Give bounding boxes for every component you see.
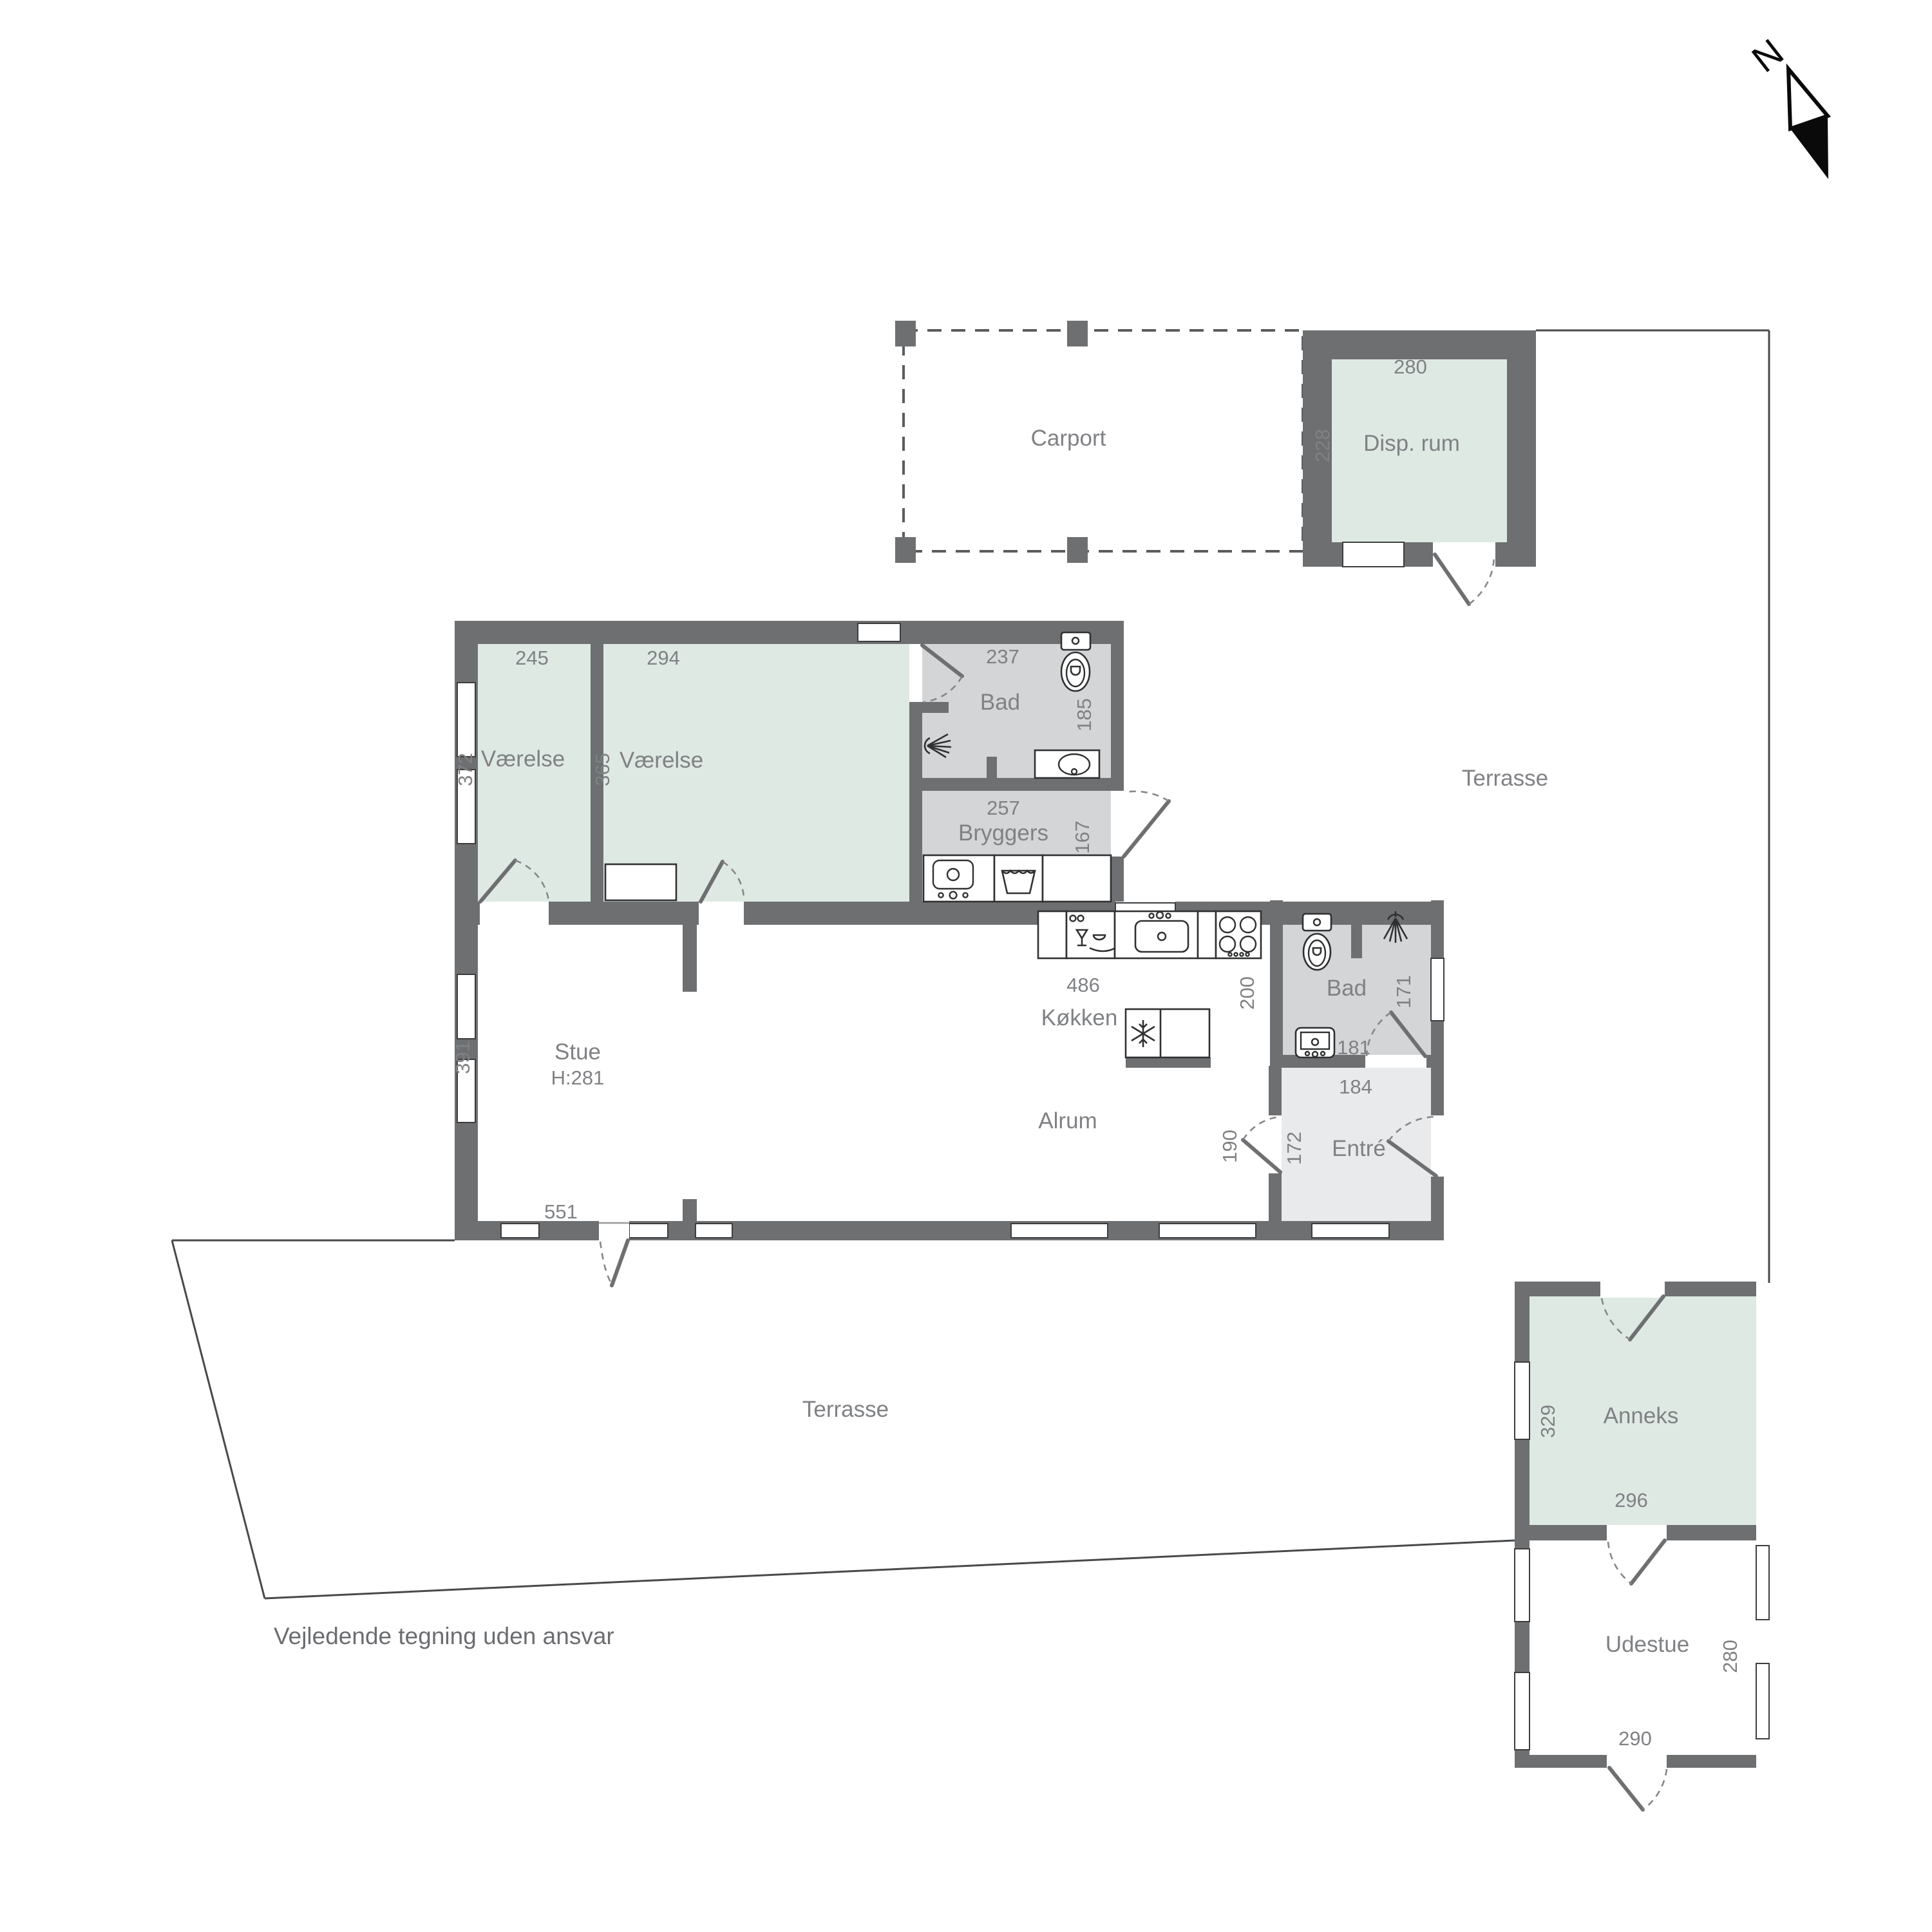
disclaimer-text: Vejledende tegning uden ansvar — [274, 1623, 614, 1649]
bathroom-sink — [1296, 1028, 1334, 1057]
stue-width: 551 — [544, 1200, 578, 1223]
stue-ceiling: H:281 — [551, 1066, 605, 1089]
room-anneks: 329 Anneks 296 — [1515, 1280, 1756, 1539]
vaerelse-1-width: 245 — [515, 647, 549, 669]
udestue-height: 280 — [1719, 1640, 1741, 1673]
alrum-label: Alrum — [1038, 1108, 1097, 1133]
carport-area: Carport — [895, 321, 1303, 563]
udestue-window — [1515, 1549, 1529, 1622]
window — [1159, 1224, 1256, 1238]
bryggers-label: Bryggers — [958, 820, 1048, 846]
anneks-window — [1515, 1362, 1529, 1439]
window — [457, 974, 475, 1039]
carport-post — [1067, 321, 1088, 346]
bad-1-label: Bad — [980, 690, 1020, 715]
carport-label: Carport — [1031, 426, 1106, 451]
udestue-bottom-door-opening — [1607, 1755, 1667, 1768]
vaerelse-2-height: 365 — [591, 753, 614, 786]
vaerelse-1-floor — [478, 644, 591, 902]
window — [858, 623, 900, 641]
disp-rum-label: Disp. rum — [1363, 431, 1460, 456]
room-udestue: Udestue 280 290 — [1515, 1525, 1769, 1810]
bad-2-sink-dim: 181 — [1337, 1036, 1370, 1059]
kokken-label: Køkken — [1041, 1005, 1118, 1030]
carport-post — [895, 537, 916, 563]
bad-2-label: Bad — [1327, 976, 1367, 1001]
window — [1011, 1224, 1108, 1238]
bad-1-height: 185 — [1073, 698, 1095, 732]
udestue-label: Udestue — [1605, 1632, 1689, 1657]
toilet-icon — [1303, 914, 1331, 970]
window — [1431, 958, 1444, 1021]
window — [1312, 1224, 1389, 1238]
floorplan-page: N Carport 280 228 Disp. rum — [0, 0, 1932, 1932]
stue-height: 391 — [451, 1041, 474, 1074]
udestue-top-door-opening — [1607, 1525, 1667, 1540]
toilet-icon — [1061, 632, 1090, 691]
terrasse-upper-label: Terrasse — [1462, 766, 1548, 791]
fridge-island — [1126, 1009, 1209, 1057]
north-label: N — [1744, 31, 1791, 80]
kokken-width: 486 — [1066, 974, 1100, 996]
udestue-window — [1515, 1672, 1529, 1750]
bad-1-width: 237 — [986, 645, 1019, 668]
anneks-height: 329 — [1537, 1405, 1559, 1438]
anneks-door-opening — [1600, 1280, 1665, 1298]
bryggers-fixtures — [923, 855, 1111, 902]
window — [457, 683, 475, 757]
window — [501, 1224, 539, 1238]
vaerelse-1-label: Værelse — [481, 746, 565, 772]
vaerelse-2-width: 294 — [647, 647, 680, 669]
udestue-window — [1756, 1663, 1769, 1739]
terrasse-lower-label: Terrasse — [802, 1397, 889, 1422]
disp-rum-width: 280 — [1394, 355, 1427, 378]
stue-label: Stue — [554, 1039, 601, 1065]
carport-post — [895, 321, 916, 346]
entre-opening-dim: 190 — [1218, 1130, 1241, 1163]
anneks-width: 296 — [1615, 1489, 1648, 1511]
vaerelse-2-floor — [603, 644, 909, 902]
bathroom-sink — [1035, 750, 1099, 778]
vaerelse-2-label: Værelse — [620, 748, 703, 773]
cabinet — [1038, 911, 1066, 958]
bad-2-south-dim: 184 — [1339, 1075, 1372, 1098]
udestue-window — [1756, 1546, 1769, 1620]
floorplan-drawing: N Carport 280 228 Disp. rum — [0, 0, 1932, 1932]
bryggers-height: 167 — [1071, 820, 1094, 854]
laundry-tub — [994, 855, 1043, 902]
disp-rum-window — [1343, 542, 1404, 567]
entre-label: Entré — [1332, 1136, 1386, 1161]
bryggers-width: 257 — [987, 797, 1020, 819]
kitchen-sink — [1135, 921, 1188, 952]
disp-rum-height: 228 — [1311, 429, 1334, 462]
entre-width: 172 — [1283, 1132, 1305, 1165]
room-disp-rum: 280 228 Disp. rum — [1303, 330, 1536, 604]
anneks-label: Anneks — [1604, 1403, 1679, 1428]
carport-post — [1067, 537, 1088, 563]
window — [696, 1224, 732, 1238]
window — [629, 1224, 668, 1238]
bad-2-height: 171 — [1392, 975, 1415, 1009]
udestue-width: 290 — [1618, 1727, 1652, 1750]
kokken-depth: 200 — [1236, 976, 1258, 1010]
wardrobe — [605, 864, 676, 900]
north-arrow-icon: N — [1744, 31, 1828, 179]
vaerelse-1-height: 372 — [454, 753, 477, 786]
